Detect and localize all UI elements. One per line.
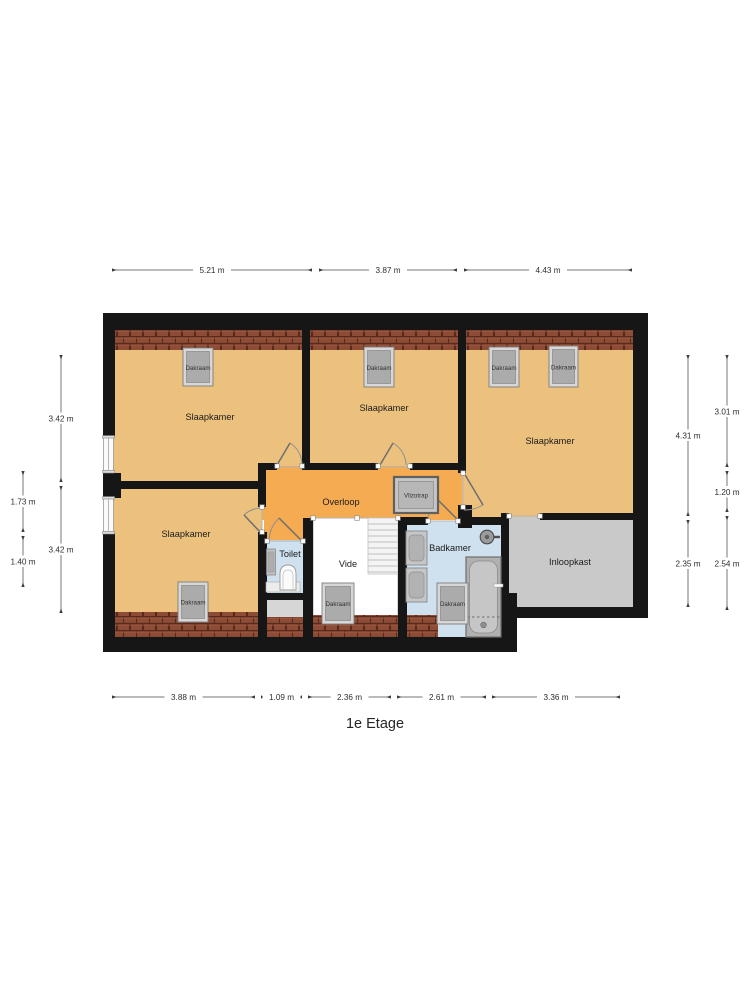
bathtub-handle — [494, 584, 503, 587]
wall-bathroom-top-a — [398, 517, 428, 525]
room-label-bedroom-top-right: Slaapkamer — [525, 436, 574, 446]
dim-right-outer-2: 1.20 m — [714, 488, 739, 497]
dim-right-outer-1: 3.01 m — [714, 408, 739, 417]
toilet-bowl — [280, 565, 296, 590]
roof-window: Dakraam — [178, 582, 208, 622]
wall-bed2-bed3 — [458, 330, 466, 473]
dim-left-inner-1: 3.42 m — [48, 415, 73, 424]
roof-window: Dakraam — [364, 347, 394, 387]
wall-closet-top — [540, 513, 633, 520]
wall-left-lower — [103, 533, 115, 652]
roof-window-label: Dakraam — [185, 365, 210, 372]
wall-arm-left-a — [258, 489, 266, 507]
roof-window-label: Dakraam — [491, 365, 516, 372]
wall-bed1-bottom — [115, 481, 265, 489]
wall-bed1-bed2 — [302, 330, 310, 467]
dim-top-3: 4.43 m — [535, 266, 560, 275]
roof-window: Dakraam — [549, 346, 578, 387]
room-label-bathroom: Badkamer — [429, 543, 471, 553]
wall-landing-top-b — [302, 463, 378, 470]
floorplan-page: Dakraam Dakraam Dakraam Dakraam Dakraam … — [0, 0, 750, 1000]
wall-toilet-bottom — [263, 593, 303, 600]
dim-bottom-2: 1.09 m — [269, 693, 294, 702]
dim-top-2: 3.87 m — [375, 266, 400, 275]
wall-bottom-main — [103, 637, 517, 652]
wall-left-upper — [103, 313, 115, 437]
dim-right-inner-2: 2.35 m — [675, 560, 700, 569]
window-1 — [103, 436, 115, 473]
wall-toilet-right — [303, 518, 313, 637]
bathtub — [466, 557, 503, 637]
roof-window-label: Dakraam — [180, 600, 205, 607]
dim-left-inner-2: 3.42 m — [48, 546, 73, 555]
roof-window-label: Dakraam — [440, 601, 465, 608]
dim-right-inner-1: 4.31 m — [675, 432, 700, 441]
roof-window: Dakraam — [183, 348, 213, 386]
bathroom-sink-1 — [406, 531, 427, 565]
room-label-closet: Inloopkast — [549, 557, 591, 567]
dim-left-outer-2: 1.40 m — [10, 558, 35, 567]
plan-title: 1e Etage — [346, 716, 404, 732]
bathtub-drain — [481, 622, 487, 628]
roof-hatch — [405, 615, 438, 637]
room-label-bedroom-bottom-left: Slaapkamer — [161, 529, 210, 539]
toilet-ledge — [266, 598, 303, 617]
roof-window: Dakraam — [322, 583, 354, 624]
roof-window-label: Dakraam — [325, 601, 350, 608]
toilet-sink-basin — [268, 552, 274, 572]
wall-right — [633, 313, 648, 618]
dim-bottom-4: 2.61 m — [429, 693, 454, 702]
wall-stub — [258, 463, 266, 489]
dim-bottom-1: 3.88 m — [171, 693, 196, 702]
wall-top — [103, 313, 648, 330]
dim-left-outer-1: 1.73 m — [10, 498, 35, 507]
loft-ladder: Vlizotrap — [394, 477, 438, 513]
room-label-bedroom-top-left: Slaapkamer — [185, 412, 234, 422]
wall-bottom-closet — [501, 607, 648, 618]
bathroom-sink-2 — [406, 568, 427, 602]
dim-bottom-5: 3.36 m — [543, 693, 568, 702]
staircase — [368, 518, 398, 574]
room-label-bedroom-top-middle: Slaapkamer — [359, 403, 408, 413]
room-label-toilet: Toilet — [279, 549, 301, 559]
roof-window-label: Dakraam — [551, 365, 576, 372]
room-label-void: Vide — [339, 559, 357, 569]
floor-plan-canvas: Dakraam Dakraam Dakraam Dakraam Dakraam … — [0, 0, 750, 1000]
loft-ladder-label: Vlizotrap — [404, 493, 429, 500]
roof-hatch — [266, 617, 303, 637]
room-label-landing: Overloop — [322, 497, 359, 507]
dim-top-1: 5.21 m — [199, 266, 224, 275]
roof-window: Dakraam — [437, 583, 468, 624]
roof-window: Dakraam — [489, 347, 519, 387]
wall-bathroom-closet — [501, 513, 509, 618]
wall-arm-left-b — [258, 532, 267, 637]
wall-landing-top-c — [410, 463, 458, 470]
dim-right-outer-3: 2.54 m — [714, 560, 739, 569]
roof-window-label: Dakraam — [366, 365, 391, 372]
roof-hatch — [115, 330, 302, 350]
dim-bottom-3: 2.36 m — [337, 693, 362, 702]
window-2 — [103, 497, 115, 534]
landing-arm-floor — [264, 505, 305, 545]
